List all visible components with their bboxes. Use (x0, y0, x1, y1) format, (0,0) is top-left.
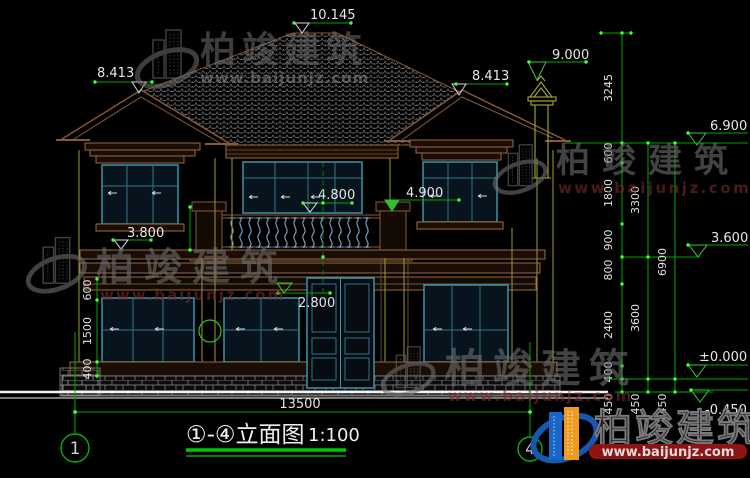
window-1f-left (102, 298, 194, 362)
window-2f-left (96, 165, 184, 231)
svg-text:www.baijunjz.com: www.baijunjz.com (200, 69, 369, 87)
drawing-title: ①-④立面图 1:100 (186, 422, 360, 456)
left-window-cornice (85, 143, 200, 163)
svg-text:3.600: 3.600 (711, 231, 748, 246)
svg-text:3245: 3245 (602, 74, 615, 102)
elevation-marker-chimney: 9.000 (527, 48, 589, 80)
window-1f-mid (224, 298, 299, 362)
company-logo: 柏竣建筑 www.baijunjz.com (527, 406, 750, 469)
svg-text:13500: 13500 (279, 397, 320, 412)
watermark-top: 柏竣建筑 www.baijunjz.com (132, 30, 369, 94)
svg-text:2400: 2400 (602, 311, 615, 339)
svg-text:www.baijunjz.com: www.baijunjz.com (448, 387, 633, 405)
elevation-marker-left-gable: 8.413 (93, 66, 153, 93)
company-logo-site: www.baijunjz.com (602, 445, 735, 460)
elevation-marker-ground: ±0.000 (687, 350, 748, 377)
svg-text:3600: 3600 (629, 304, 642, 332)
company-logo-icon (527, 407, 603, 469)
svg-text:www.baijunjz.com: www.baijunjz.com (558, 179, 750, 197)
svg-text:2.800: 2.800 (298, 296, 335, 311)
center-eave-band (226, 145, 398, 158)
svg-text:800: 800 (602, 260, 615, 281)
svg-text:4.900: 4.900 (406, 186, 443, 201)
svg-text:±0.000: ±0.000 (699, 350, 747, 365)
cad-elevation-drawing: 10.145 8.413 8.413 9.000 4.800 4.900 3.8… (0, 0, 750, 478)
svg-text:8.413: 8.413 (472, 69, 509, 84)
svg-text:6900: 6900 (656, 248, 669, 276)
svg-text:3.800: 3.800 (127, 226, 164, 241)
svg-text:①-④立面图: ①-④立面图 (186, 422, 305, 448)
svg-text:1: 1 (70, 439, 81, 459)
svg-text:柏竣建筑: 柏竣建筑 (556, 141, 740, 181)
svg-text:柏竣建筑: 柏竣建筑 (96, 245, 288, 289)
axis-bubble-1: 1 (61, 332, 89, 462)
svg-text:10.145: 10.145 (310, 8, 356, 23)
svg-text:900: 900 (602, 230, 615, 251)
watermark-left: 柏竣建筑 www.baijunjz.com (24, 238, 288, 304)
elevation-marker-right-band: 3.600 (687, 231, 748, 257)
watermark-right: 柏竣建筑 www.baijunjz.com (491, 141, 750, 199)
svg-text:www.baijunjz.com: www.baijunjz.com (100, 286, 285, 304)
svg-text:400: 400 (81, 359, 94, 380)
window-sill (417, 222, 503, 229)
company-logo-brand: 柏竣建筑 (594, 406, 750, 450)
balusters (229, 217, 370, 248)
svg-text:柏竣建筑: 柏竣建筑 (200, 30, 368, 71)
svg-text:1:100: 1:100 (308, 425, 360, 446)
svg-text:1500: 1500 (81, 317, 94, 345)
right-dimension-chains (565, 33, 748, 392)
svg-text:600: 600 (81, 280, 94, 301)
svg-text:柏竣建筑: 柏竣建筑 (445, 346, 637, 392)
svg-text:4.800: 4.800 (318, 188, 355, 203)
right-window-cornice (410, 140, 513, 160)
entry-door (307, 278, 374, 388)
svg-text:9.000: 9.000 (552, 48, 589, 63)
svg-text:8.413: 8.413 (97, 66, 134, 81)
cad-canvas: 10.145 8.413 8.413 9.000 4.800 4.900 3.8… (0, 0, 750, 478)
svg-text:6.900: 6.900 (710, 119, 747, 134)
